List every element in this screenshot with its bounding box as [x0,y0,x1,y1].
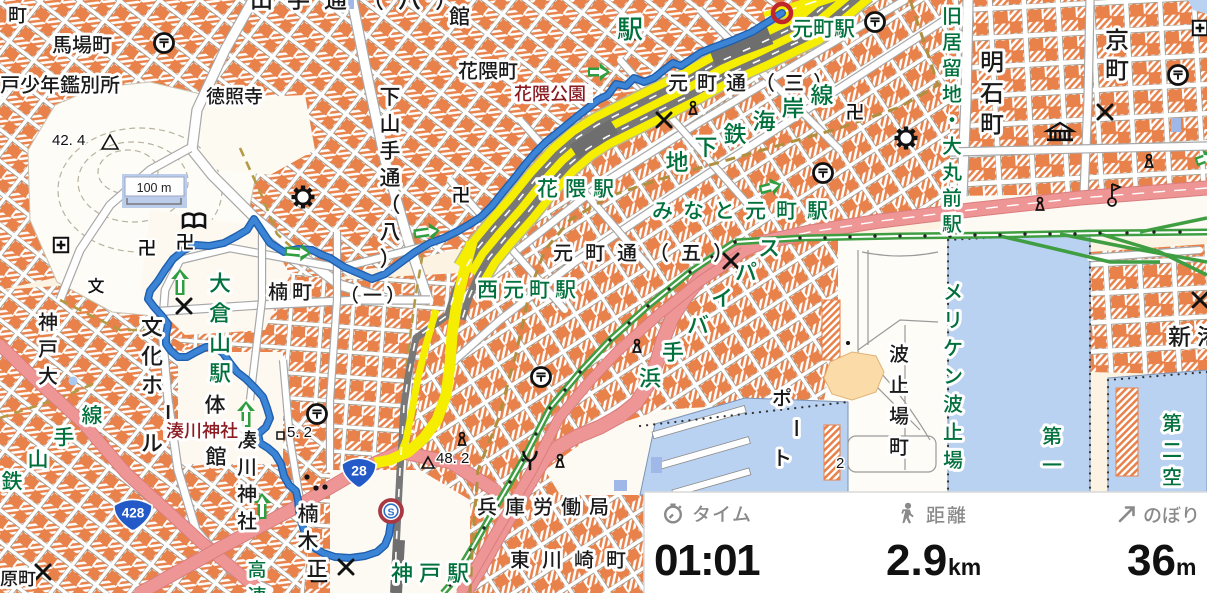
svg-text:428: 428 [122,505,145,520]
svg-text:2.9: 2.9 [886,536,947,585]
svg-text:28: 28 [351,463,367,479]
svg-text:m: m [1176,554,1196,580]
svg-text:5. 2: 5. 2 [287,424,312,441]
svg-text:2: 2 [836,455,844,472]
svg-text:36: 36 [1127,536,1176,585]
svg-text:42. 4: 42. 4 [52,132,85,149]
svg-text:01:01: 01:01 [654,536,760,585]
svg-text:km: km [948,554,981,580]
svg-text:S: S [387,506,394,518]
svg-text:48. 2: 48. 2 [436,450,469,467]
svg-text:100 m: 100 m [137,181,172,195]
